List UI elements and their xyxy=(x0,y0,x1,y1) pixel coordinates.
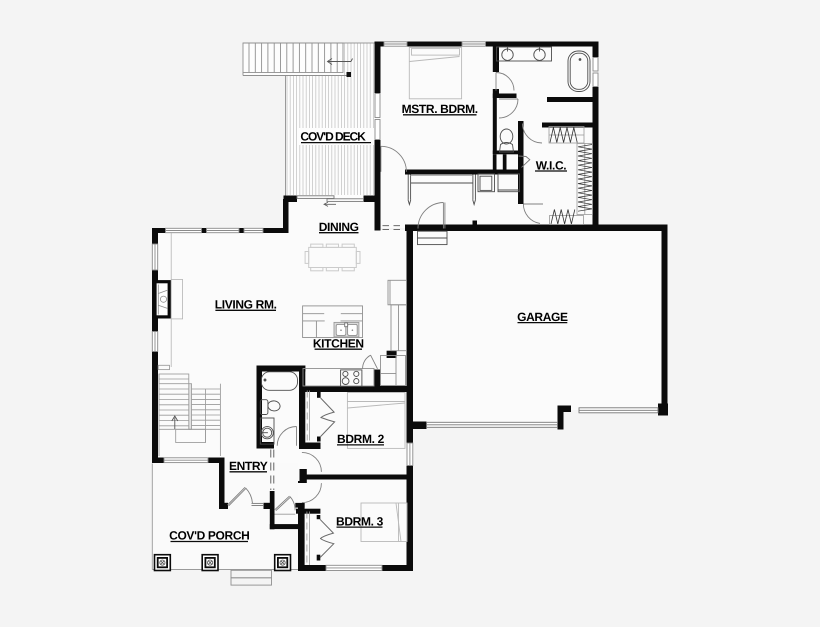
svg-text:W.I.C.: W.I.C. xyxy=(536,158,567,172)
svg-text:BDRM. 3: BDRM. 3 xyxy=(336,514,384,528)
svg-text:KITCHEN: KITCHEN xyxy=(313,336,364,350)
svg-text:BDRM. 2: BDRM. 2 xyxy=(337,432,385,446)
svg-text:LIVING RM.: LIVING RM. xyxy=(215,297,277,311)
svg-text:ENTRY: ENTRY xyxy=(229,459,268,473)
svg-text:GARAGE: GARAGE xyxy=(517,310,568,324)
svg-text:COV'D PORCH: COV'D PORCH xyxy=(169,529,249,543)
svg-text:DINING: DINING xyxy=(319,220,359,234)
svg-text:COV'D DECK: COV'D DECK xyxy=(300,130,366,144)
svg-text:MSTR. BDRM.: MSTR. BDRM. xyxy=(402,102,478,116)
